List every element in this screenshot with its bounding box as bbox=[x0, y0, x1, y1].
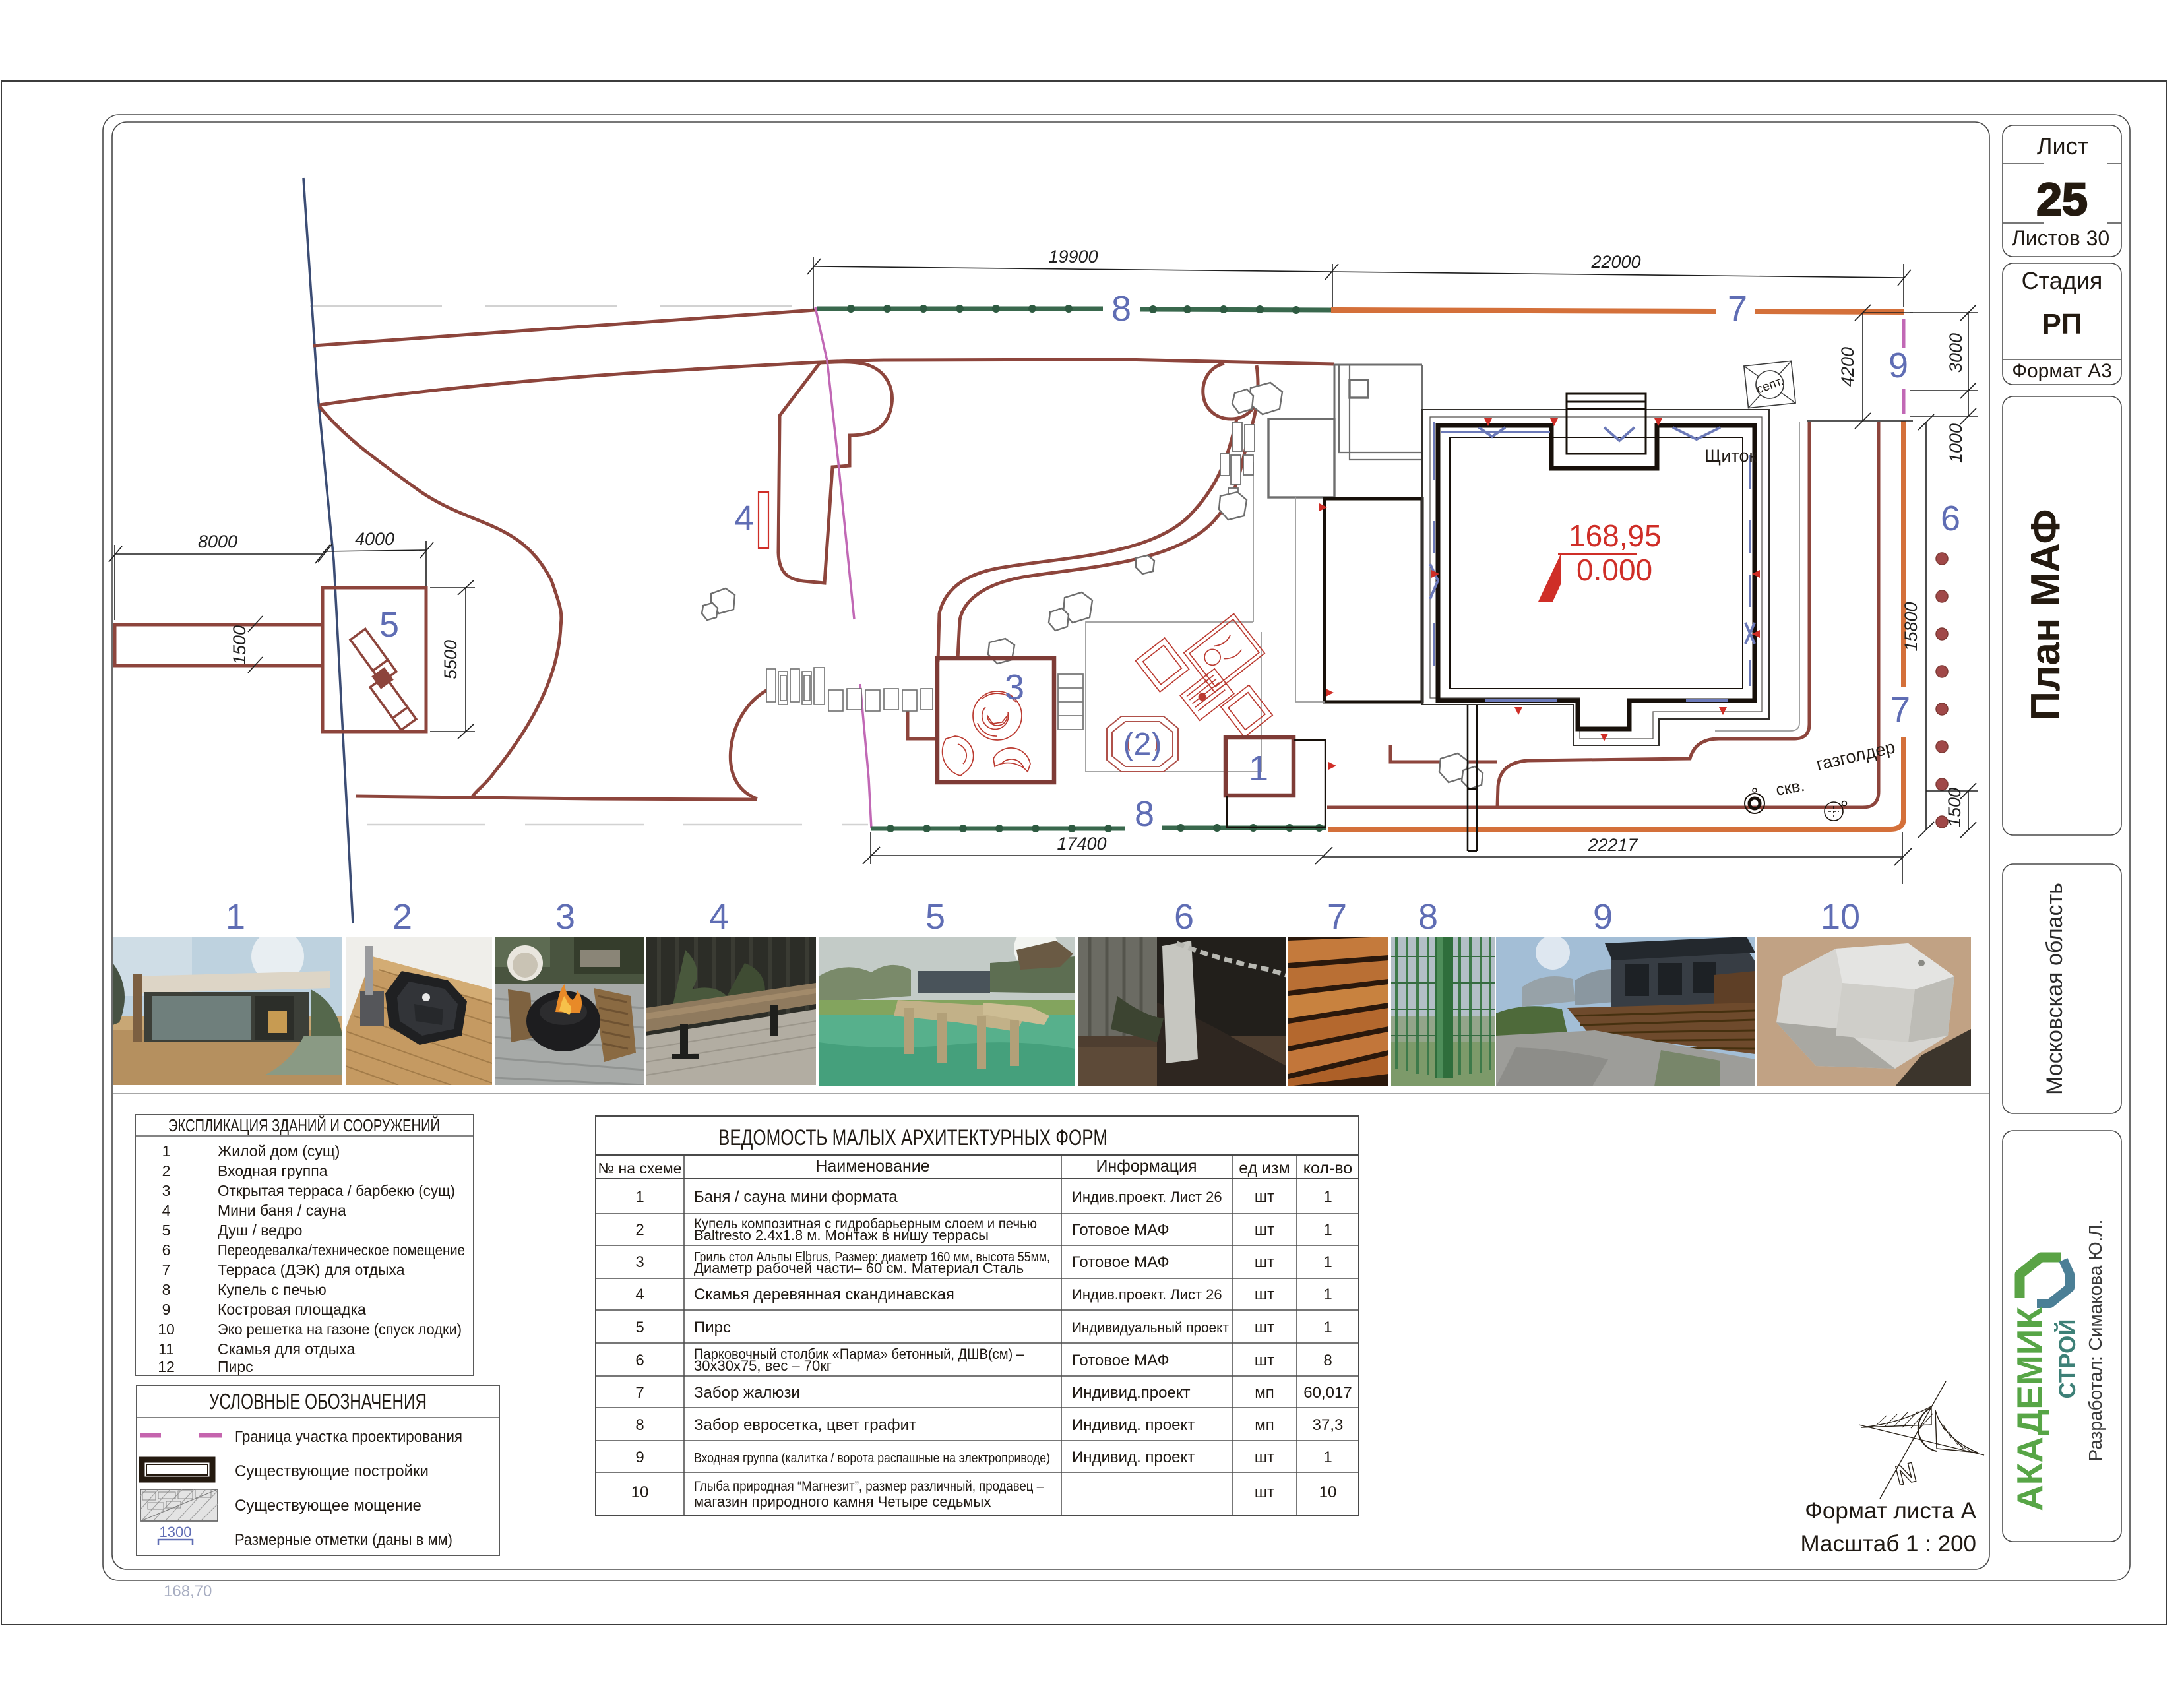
svg-text:8: 8 bbox=[1418, 897, 1438, 937]
svg-text:3: 3 bbox=[635, 1253, 644, 1271]
svg-text:Диаметр рабочей части– 60 см.: Диаметр рабочей части– 60 см. Материал С… bbox=[694, 1260, 1024, 1276]
svg-text:Готовое МАФ: Готовое МАФ bbox=[1072, 1352, 1170, 1369]
svg-text:1300: 1300 bbox=[160, 1524, 192, 1540]
svg-text:Терраса (ДЭК) для отдыха: Терраса (ДЭК) для отдыха bbox=[218, 1261, 405, 1278]
svg-text:4: 4 bbox=[709, 897, 729, 937]
svg-text:5: 5 bbox=[379, 605, 399, 644]
svg-text:2: 2 bbox=[392, 897, 412, 937]
svg-text:3000: 3000 bbox=[1946, 333, 1966, 373]
svg-text:Готовое МАФ: Готовое МАФ bbox=[1072, 1253, 1170, 1271]
svg-text:Индивид. проект: Индивид. проект bbox=[1072, 1416, 1195, 1434]
svg-text:6: 6 bbox=[162, 1241, 171, 1259]
svg-text:Формат листа А: Формат листа А bbox=[1805, 1498, 1976, 1524]
svg-text:7: 7 bbox=[1327, 897, 1347, 937]
svg-text:Забор жалюзи: Забор жалюзи bbox=[694, 1384, 800, 1402]
svg-text:Московская область: Московская область bbox=[2042, 883, 2067, 1095]
svg-text:9: 9 bbox=[635, 1449, 644, 1466]
svg-text:12: 12 bbox=[158, 1358, 175, 1375]
svg-text:168,70: 168,70 bbox=[164, 1582, 212, 1600]
svg-text:шт: шт bbox=[1255, 1449, 1274, 1466]
svg-text:4200: 4200 bbox=[1838, 347, 1857, 387]
svg-text:4: 4 bbox=[162, 1202, 171, 1219]
svg-text:10: 10 bbox=[1821, 897, 1860, 937]
svg-text:1500: 1500 bbox=[230, 625, 249, 665]
svg-text:Глыба природная “Магнезит”, р: Глыба природная “Магнезит”, размер разли… bbox=[694, 1479, 1044, 1494]
svg-text:мп: мп bbox=[1255, 1384, 1274, 1402]
svg-text:№ на схеме: № на схеме bbox=[598, 1160, 681, 1177]
svg-text:8000: 8000 bbox=[198, 532, 237, 551]
svg-text:5: 5 bbox=[635, 1319, 644, 1336]
svg-text:168,95: 168,95 bbox=[1569, 518, 1662, 553]
svg-text:Скамья деревянная скандинавска: Скамья деревянная скандинавская bbox=[694, 1286, 954, 1303]
svg-text:10: 10 bbox=[631, 1484, 649, 1501]
svg-text:17400: 17400 bbox=[1057, 834, 1106, 854]
svg-text:Существующие постройки: Существующие постройки bbox=[235, 1462, 429, 1480]
svg-text:8: 8 bbox=[1111, 289, 1131, 328]
svg-text:3: 3 bbox=[1005, 668, 1024, 707]
svg-text:Забор евросетка, цвет графит: Забор евросетка, цвет графит bbox=[694, 1416, 916, 1434]
svg-text:Информация: Информация bbox=[1096, 1157, 1197, 1175]
svg-text:Индивид.проект: Индивид.проект bbox=[1072, 1384, 1191, 1402]
svg-text:7: 7 bbox=[635, 1384, 644, 1402]
svg-text:Готовое МАФ: Готовое МАФ bbox=[1072, 1221, 1170, 1239]
svg-text:Стадия: Стадия bbox=[2022, 267, 2103, 294]
svg-text:Щиток: Щиток bbox=[1704, 446, 1757, 466]
svg-text:Костровая площадка: Костровая площадка bbox=[218, 1301, 366, 1318]
svg-text:9: 9 bbox=[1888, 346, 1908, 385]
svg-text:Входная группа: Входная группа bbox=[218, 1162, 328, 1179]
svg-text:Мини баня / сауна: Мини баня / сауна bbox=[218, 1202, 346, 1219]
svg-text:Скамья для отдыха: Скамья для отдыха bbox=[218, 1340, 356, 1358]
svg-text:1: 1 bbox=[635, 1188, 644, 1206]
svg-text:Формат А3: Формат А3 bbox=[2012, 360, 2112, 382]
svg-text:0.000: 0.000 bbox=[1576, 553, 1652, 587]
svg-text:Лист: Лист bbox=[2037, 133, 2088, 160]
svg-text:АКАДЕМИК: АКАДЕМИК bbox=[2009, 1307, 2050, 1511]
svg-text:1: 1 bbox=[1323, 1253, 1332, 1271]
svg-text:10: 10 bbox=[158, 1321, 175, 1338]
svg-text:Существующее мощение: Существующее мощение bbox=[235, 1497, 421, 1515]
svg-text:шт: шт bbox=[1255, 1352, 1274, 1369]
svg-text:Baltresto 2.4х1.8 м. Монтаж в: Baltresto 2.4х1.8 м. Монтаж в нишу терра… bbox=[694, 1227, 989, 1243]
svg-text:1: 1 bbox=[1323, 1449, 1332, 1466]
svg-text:4000: 4000 bbox=[355, 529, 394, 549]
svg-text:7: 7 bbox=[1890, 690, 1910, 730]
svg-text:шт: шт bbox=[1255, 1484, 1274, 1501]
svg-text:1: 1 bbox=[1323, 1286, 1332, 1303]
svg-text:5: 5 bbox=[162, 1222, 171, 1239]
svg-text:Наименование: Наименование bbox=[815, 1157, 929, 1175]
svg-text:2: 2 bbox=[162, 1162, 171, 1179]
svg-text:6: 6 bbox=[635, 1352, 644, 1369]
svg-text:Баня / сауна мини формата: Баня / сауна мини формата bbox=[694, 1188, 898, 1206]
svg-text:ЭКСПЛИКАЦИЯ ЗДАНИЙ И СООРУЖЕНИ: ЭКСПЛИКАЦИЯ ЗДАНИЙ И СООРУЖЕНИЙ bbox=[168, 1115, 440, 1135]
svg-text:22217: 22217 bbox=[1587, 835, 1638, 855]
svg-text:9: 9 bbox=[162, 1301, 171, 1318]
svg-text:ед изм: ед изм bbox=[1239, 1159, 1290, 1177]
svg-text:1: 1 bbox=[1323, 1221, 1332, 1239]
svg-text:60,017: 60,017 bbox=[1303, 1384, 1352, 1402]
svg-text:8: 8 bbox=[1323, 1352, 1332, 1369]
svg-text:шт: шт bbox=[1255, 1286, 1274, 1303]
svg-text:План МАФ: План МАФ bbox=[2023, 509, 2069, 721]
svg-text:1: 1 bbox=[1323, 1319, 1332, 1336]
svg-text:11: 11 bbox=[158, 1340, 174, 1358]
svg-text:8: 8 bbox=[1135, 794, 1154, 834]
svg-text:Индив.проект. Лист 26: Индив.проект. Лист 26 bbox=[1072, 1189, 1222, 1205]
svg-text:Листов 30: Листов 30 bbox=[2012, 226, 2109, 250]
svg-text:газголдер: газголдер bbox=[1815, 737, 1897, 774]
svg-text:кол-во: кол-во bbox=[1303, 1159, 1352, 1177]
svg-text:ВЕДОМОСТЬ МАЛЫХ АРХИТЕКТУРНЫХ: ВЕДОМОСТЬ МАЛЫХ АРХИТЕКТУРНЫХ ФОРМ bbox=[718, 1125, 1108, 1150]
svg-text:Индивид. проект: Индивид. проект bbox=[1072, 1449, 1195, 1466]
svg-text:Жилой дом (сущ): Жилой дом (сущ) bbox=[218, 1142, 340, 1160]
svg-text:1000: 1000 bbox=[1946, 423, 1966, 463]
svg-text:3: 3 bbox=[555, 897, 575, 937]
svg-text:магазин природного камня Четыр: магазин природного камня Четыре седьмых bbox=[694, 1493, 991, 1510]
svg-text:30х30х75, вес – 70кг: 30х30х75, вес – 70кг bbox=[694, 1358, 832, 1374]
svg-text:шт: шт bbox=[1255, 1188, 1274, 1206]
svg-text:7: 7 bbox=[1728, 289, 1747, 328]
svg-text:Душ / ведро: Душ / ведро bbox=[218, 1222, 302, 1239]
svg-text:9: 9 bbox=[1593, 897, 1613, 937]
svg-text:6: 6 bbox=[1174, 897, 1194, 937]
svg-text:4: 4 bbox=[734, 499, 754, 538]
svg-text:3: 3 bbox=[162, 1182, 171, 1199]
svg-text:мп: мп bbox=[1255, 1416, 1274, 1434]
svg-text:шт: шт bbox=[1255, 1319, 1274, 1336]
svg-text:Индив.проект. Лист 26: Индив.проект. Лист 26 bbox=[1072, 1286, 1222, 1303]
svg-text:шт: шт bbox=[1255, 1253, 1274, 1271]
svg-text:4: 4 bbox=[635, 1286, 644, 1303]
svg-text:5500: 5500 bbox=[441, 640, 460, 679]
svg-text:25: 25 bbox=[2036, 173, 2088, 225]
svg-text:Купель с печью: Купель с печью bbox=[218, 1281, 327, 1298]
svg-text:19900: 19900 bbox=[1048, 247, 1098, 266]
svg-text:Масштаб 1 : 200: Масштаб 1 : 200 bbox=[1801, 1531, 1977, 1557]
svg-text:Разработал: Симакова Ю.Л.: Разработал: Симакова Ю.Л. bbox=[2085, 1220, 2106, 1462]
svg-text:2: 2 bbox=[635, 1221, 644, 1239]
svg-text:1: 1 bbox=[226, 897, 245, 937]
svg-text:7: 7 bbox=[162, 1261, 171, 1278]
svg-text:Индивидуальный проект: Индивидуальный проект bbox=[1072, 1319, 1229, 1336]
svg-text:СТРОЙ: СТРОЙ bbox=[2054, 1319, 2080, 1398]
svg-text:Граница участка проектирования: Граница участка проектирования bbox=[235, 1428, 462, 1446]
svg-text:Переодевалка/техническое помещ: Переодевалка/техническое помещение bbox=[218, 1241, 465, 1259]
svg-text:1: 1 bbox=[162, 1142, 171, 1160]
svg-text:Пирс: Пирс bbox=[218, 1358, 253, 1375]
svg-text:Пирс: Пирс bbox=[694, 1319, 731, 1336]
svg-text:1: 1 bbox=[1249, 749, 1268, 788]
svg-text:15800: 15800 bbox=[1901, 602, 1921, 651]
svg-text:N: N bbox=[1892, 1456, 1919, 1491]
svg-text:1500: 1500 bbox=[1945, 788, 1964, 827]
svg-text:Открытая терраса / барбекю (су: Открытая терраса / барбекю (сущ) bbox=[218, 1182, 455, 1199]
svg-text:шт: шт bbox=[1255, 1221, 1274, 1239]
svg-text:6: 6 bbox=[1941, 499, 1960, 538]
svg-text:УСЛОВНЫЕ ОБОЗНАЧЕНИЯ: УСЛОВНЫЕ ОБОЗНАЧЕНИЯ bbox=[209, 1389, 427, 1414]
svg-text:5: 5 bbox=[925, 897, 945, 937]
svg-text:(2): (2) bbox=[1123, 727, 1162, 762]
svg-text:РП: РП bbox=[2042, 308, 2082, 340]
svg-text:скв.: скв. bbox=[1774, 776, 1806, 799]
svg-text:8: 8 bbox=[162, 1281, 171, 1298]
svg-text:1: 1 bbox=[1323, 1188, 1332, 1206]
svg-text:10: 10 bbox=[1319, 1484, 1337, 1501]
svg-text:Эко решетка на газоне (спуск л: Эко решетка на газоне (спуск лодки) bbox=[218, 1321, 462, 1338]
svg-text:Входная группа (калитка / воро: Входная группа (калитка / ворота распашн… bbox=[694, 1451, 1050, 1466]
svg-text:22000: 22000 bbox=[1590, 252, 1640, 272]
svg-text:8: 8 bbox=[635, 1416, 644, 1434]
svg-text:37,3: 37,3 bbox=[1313, 1416, 1344, 1434]
svg-text:Размерные отметки (даны в мм): Размерные отметки (даны в мм) bbox=[235, 1531, 452, 1549]
